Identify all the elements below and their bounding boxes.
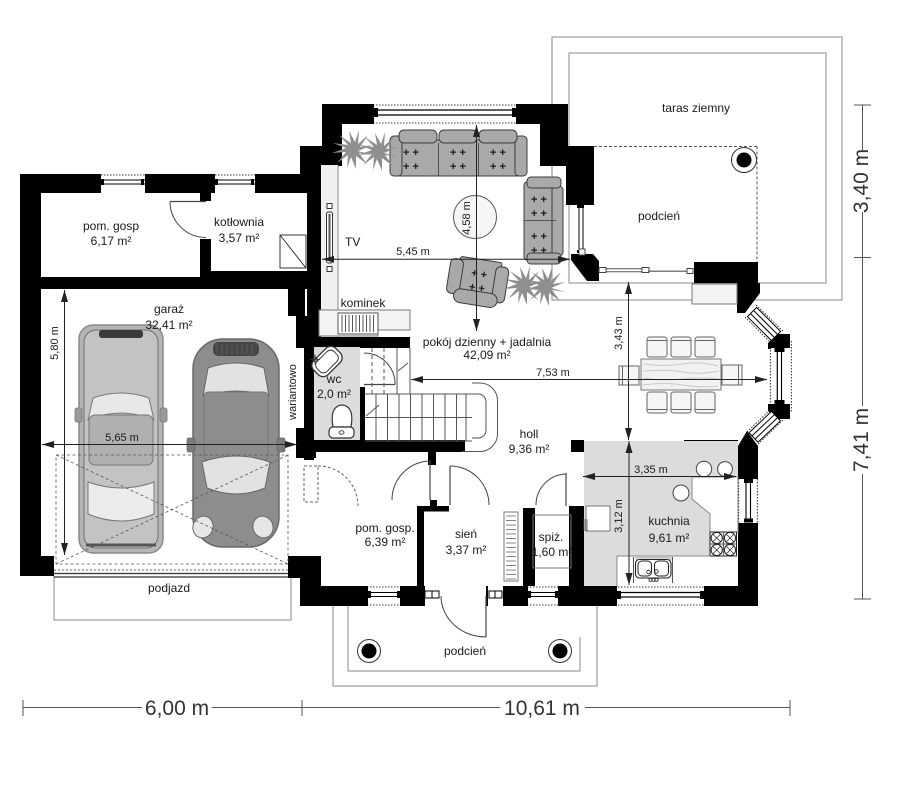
svg-text:kotłownia: kotłownia bbox=[214, 215, 264, 229]
svg-text:6,39 m²: 6,39 m² bbox=[365, 535, 406, 549]
svg-text:+ +: + + bbox=[531, 245, 547, 257]
svg-text:+ +: + + bbox=[490, 147, 506, 159]
svg-text:3,37 m²: 3,37 m² bbox=[446, 543, 487, 557]
svg-text:7,53 m: 7,53 m bbox=[536, 367, 570, 379]
svg-text:spiż.: spiż. bbox=[539, 530, 564, 544]
svg-text:3,35 m: 3,35 m bbox=[634, 464, 668, 476]
svg-text:+ +: + + bbox=[531, 231, 547, 243]
svg-text:2,0 m²: 2,0 m² bbox=[317, 387, 351, 401]
svg-text:4,58 m: 4,58 m bbox=[461, 201, 473, 235]
svg-text:+ +: + + bbox=[490, 161, 506, 173]
svg-text:kuchnia: kuchnia bbox=[648, 514, 690, 528]
svg-text:3,57 m²: 3,57 m² bbox=[219, 231, 260, 245]
svg-text:taras ziemny: taras ziemny bbox=[662, 101, 730, 115]
svg-text:podjazd: podjazd bbox=[148, 581, 190, 595]
svg-text:sień: sień bbox=[455, 527, 477, 541]
svg-text:wariantowo: wariantowo bbox=[287, 364, 299, 421]
svg-text:6,00 m: 6,00 m bbox=[145, 697, 209, 720]
svg-text:5,80 m: 5,80 m bbox=[49, 326, 61, 360]
svg-text:pokój dzienny + jadalnia: pokój dzienny + jadalnia bbox=[423, 335, 552, 349]
svg-text:3,12 m: 3,12 m bbox=[613, 499, 625, 533]
svg-text:7,41 m: 7,41 m bbox=[850, 408, 873, 472]
svg-text:5,45 m: 5,45 m bbox=[396, 246, 430, 258]
svg-text:+ +: + + bbox=[450, 161, 466, 173]
svg-text:6,17 m²: 6,17 m² bbox=[91, 234, 132, 248]
svg-text:+ +: + + bbox=[450, 147, 466, 159]
svg-text:5,65 m: 5,65 m bbox=[105, 432, 139, 444]
svg-text:+ +: + + bbox=[403, 147, 419, 159]
svg-text:9,61 m²: 9,61 m² bbox=[649, 531, 690, 545]
svg-text:podcień: podcień bbox=[444, 644, 486, 658]
svg-text:3,40 m: 3,40 m bbox=[850, 149, 873, 213]
svg-text:42,09 m²: 42,09 m² bbox=[463, 348, 510, 362]
svg-text:TV: TV bbox=[345, 235, 360, 249]
svg-text:10,61 m: 10,61 m bbox=[504, 697, 580, 720]
svg-text:holl: holl bbox=[520, 427, 539, 441]
svg-text:32,41 m²: 32,41 m² bbox=[145, 318, 192, 332]
svg-text:9,36 m²: 9,36 m² bbox=[509, 442, 550, 456]
svg-text:1,60 m²: 1,60 m² bbox=[532, 545, 573, 559]
svg-text:wc: wc bbox=[326, 372, 342, 386]
svg-text:podcień: podcień bbox=[638, 209, 680, 223]
svg-text:kominek: kominek bbox=[341, 296, 387, 310]
svg-text:pom. gosp.: pom. gosp. bbox=[355, 521, 414, 535]
svg-text:3,43 m: 3,43 m bbox=[613, 316, 625, 350]
svg-text:+ +: + + bbox=[403, 161, 419, 173]
svg-text:+ +: + + bbox=[531, 208, 547, 220]
svg-text:pom. gosp: pom. gosp bbox=[83, 219, 139, 233]
svg-text:garaż: garaż bbox=[154, 302, 184, 316]
svg-text:+ +: + + bbox=[531, 194, 547, 206]
svg-text:+ +: + + bbox=[470, 267, 488, 281]
